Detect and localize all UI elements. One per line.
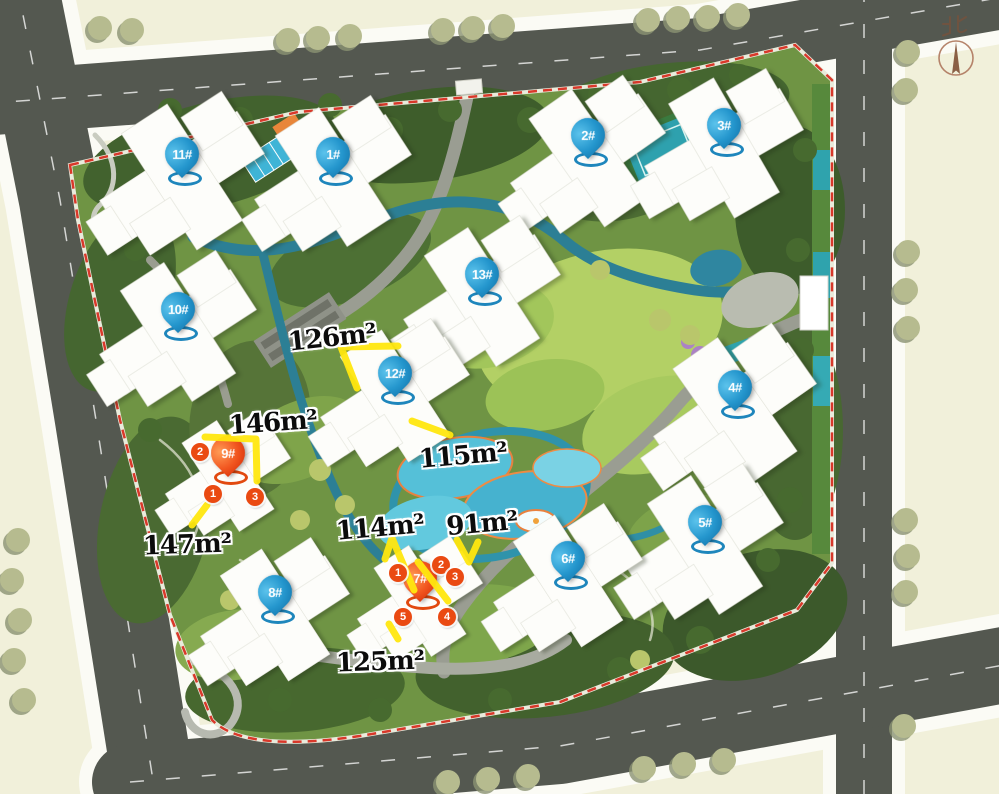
area-label: 146m² — [228, 405, 318, 441]
unit-number-badge: 5 — [394, 608, 412, 626]
area-label: 147m² — [142, 528, 231, 561]
building-pin-label: 10# — [161, 292, 195, 326]
map-pin-icon: 11# — [158, 130, 206, 178]
map-pin-icon: 13# — [458, 250, 506, 298]
building-pin-label: 11# — [165, 137, 199, 171]
map-pin-icon: 12# — [371, 349, 419, 397]
map-pin-icon: 3# — [700, 101, 748, 149]
east-gate-building — [800, 276, 828, 330]
north-gate — [455, 79, 482, 95]
unit-number-badge: 3 — [246, 488, 264, 506]
unit-number-badge: 1 — [389, 564, 407, 582]
building-pin-label: 6# — [551, 541, 585, 575]
unit-number-badge: 4 — [438, 608, 456, 626]
unit-number-badge: 3 — [446, 568, 464, 586]
map-pin-icon: 1# — [309, 130, 357, 178]
building-pin-label: 5# — [688, 505, 722, 539]
map-pin-icon: 2# — [564, 111, 612, 159]
building-pin-label: 9# — [211, 436, 245, 470]
building-pin-label: 3# — [707, 108, 741, 142]
area-label: 125m² — [335, 645, 424, 678]
building-pin-label: 1# — [316, 137, 350, 171]
map-pin-icon: 5# — [681, 498, 729, 546]
building-pin-label: 12# — [378, 356, 412, 390]
map-pin-icon: 8# — [251, 568, 299, 616]
building-pin-label: 13# — [465, 257, 499, 291]
map-pin-icon: 10# — [154, 285, 202, 333]
map-pin-icon: 4# — [711, 363, 759, 411]
map-stage: 北 11#1#2#3#10#13#12#4#9#5#6#8#7#126m²146… — [0, 0, 999, 794]
building-pin-label: 4# — [718, 370, 752, 404]
building-pin-label: 2# — [571, 118, 605, 152]
unit-number-badge: 2 — [191, 443, 209, 461]
map-pin-icon: 6# — [544, 534, 592, 582]
unit-number-badge: 1 — [204, 485, 222, 503]
site-plan-base-map — [0, 0, 999, 794]
building-pin-label: 8# — [258, 575, 292, 609]
area-label: 91m² — [445, 506, 518, 542]
